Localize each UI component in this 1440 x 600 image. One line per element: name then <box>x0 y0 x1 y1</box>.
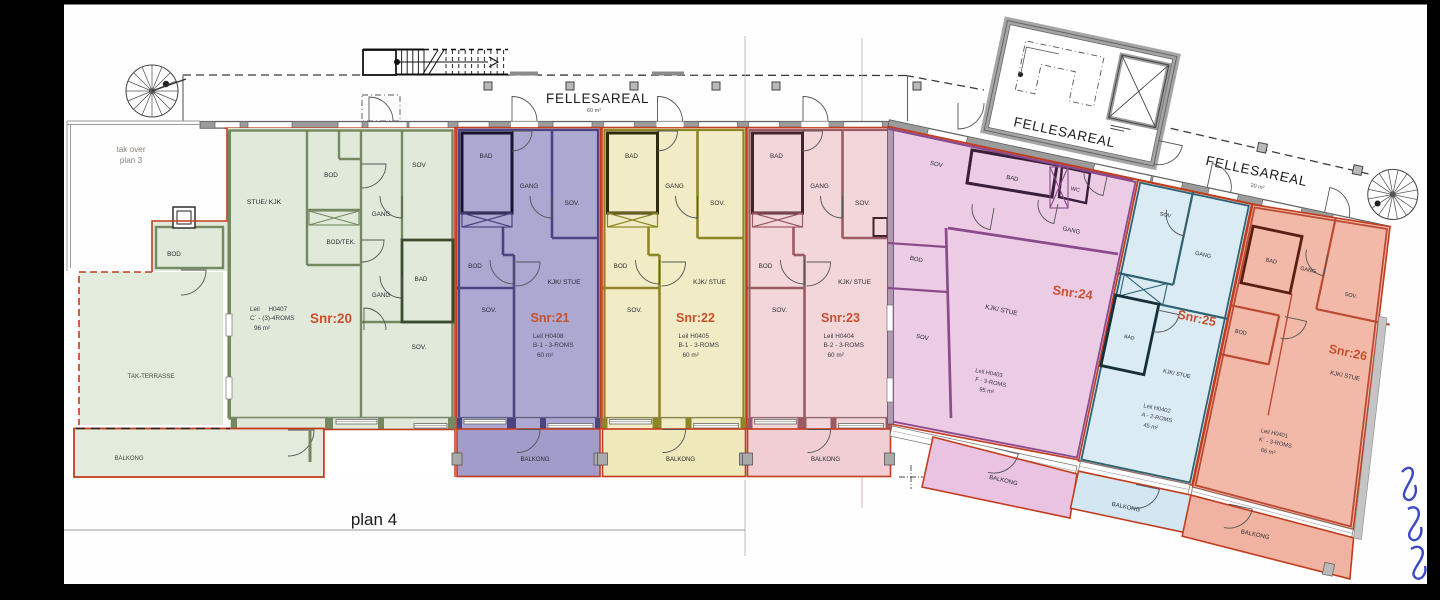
svg-text:C´ - (3)-4ROMS: C´ - (3)-4ROMS <box>250 315 294 322</box>
svg-text:BAD: BAD <box>415 276 428 283</box>
svg-text:Leil H0407: Leil H0407 <box>250 306 288 313</box>
svg-text:BALKONG: BALKONG <box>520 457 549 463</box>
svg-text:STUE/ KJK: STUE/ KJK <box>247 199 282 206</box>
svg-text:BOD: BOD <box>167 251 181 258</box>
svg-text:GANG: GANG <box>520 183 539 190</box>
svg-text:BOD: BOD <box>324 172 338 179</box>
svg-text:60 m²: 60 m² <box>683 352 699 359</box>
svg-text:SOV.: SOV. <box>627 307 642 314</box>
svg-text:60 m²: 60 m² <box>537 352 553 359</box>
svg-text:BAD: BAD <box>480 153 493 160</box>
svg-text:TAK-TERRASSE: TAK-TERRASSE <box>128 373 175 380</box>
svg-text:SOV.: SOV. <box>772 307 787 314</box>
svg-text:SOV.: SOV. <box>412 344 427 351</box>
svg-text:Leil H0405: Leil H0405 <box>679 333 710 340</box>
svg-text:BALKONG: BALKONG <box>811 457 840 463</box>
svg-text:BALKONG: BALKONG <box>666 457 695 463</box>
svg-text:BOD/TEK.: BOD/TEK. <box>327 239 356 246</box>
svg-text:BAD: BAD <box>625 153 638 160</box>
svg-text:SOV.: SOV. <box>565 200 580 207</box>
svg-text:60 m²: 60 m² <box>828 352 844 359</box>
svg-text:SOV: SOV <box>412 162 426 169</box>
svg-text:BOD: BOD <box>468 263 482 270</box>
svg-text:SOV.: SOV. <box>482 307 497 314</box>
svg-text:BALKONG: BALKONG <box>114 456 143 462</box>
svg-text:FELLESAREAL: FELLESAREAL <box>546 91 649 106</box>
svg-text:Snr:20: Snr:20 <box>310 311 352 326</box>
svg-text:BOD: BOD <box>614 263 628 270</box>
svg-text:KJK/ STUE: KJK/ STUE <box>548 279 582 286</box>
svg-text:BAD: BAD <box>770 153 783 160</box>
svg-text:Snr:23: Snr:23 <box>821 311 860 325</box>
svg-text:tak over: tak over <box>116 145 145 154</box>
svg-text:B-1 - 3-ROMS: B-1 - 3-ROMS <box>679 342 719 349</box>
svg-text:GANG: GANG <box>665 183 684 190</box>
svg-text:BOD: BOD <box>759 263 773 270</box>
svg-text:plan 4: plan 4 <box>351 510 397 529</box>
svg-text:GANG: GANG <box>372 211 391 218</box>
svg-text:Snr:22: Snr:22 <box>676 311 715 325</box>
svg-text:Snr:21: Snr:21 <box>531 311 570 325</box>
svg-text:B-1 - 3-ROMS: B-1 - 3-ROMS <box>533 342 573 349</box>
svg-text:SOV.: SOV. <box>855 200 870 207</box>
svg-text:plan 3: plan 3 <box>120 156 143 165</box>
svg-text:Leil H0404: Leil H0404 <box>824 333 855 340</box>
svg-text:Leil H0408: Leil H0408 <box>533 333 564 340</box>
svg-text:B-2 - 3-ROMS: B-2 - 3-ROMS <box>824 342 864 349</box>
svg-text:GANG: GANG <box>372 292 391 299</box>
svg-text:KJK/ STUE: KJK/ STUE <box>693 279 727 286</box>
svg-text:KJK/ STUE: KJK/ STUE <box>838 279 872 286</box>
svg-text:60 m²: 60 m² <box>587 108 601 114</box>
svg-text:GANG: GANG <box>810 183 829 190</box>
svg-text:SOV.: SOV. <box>710 200 725 207</box>
svg-text:96 m²: 96 m² <box>254 325 270 332</box>
